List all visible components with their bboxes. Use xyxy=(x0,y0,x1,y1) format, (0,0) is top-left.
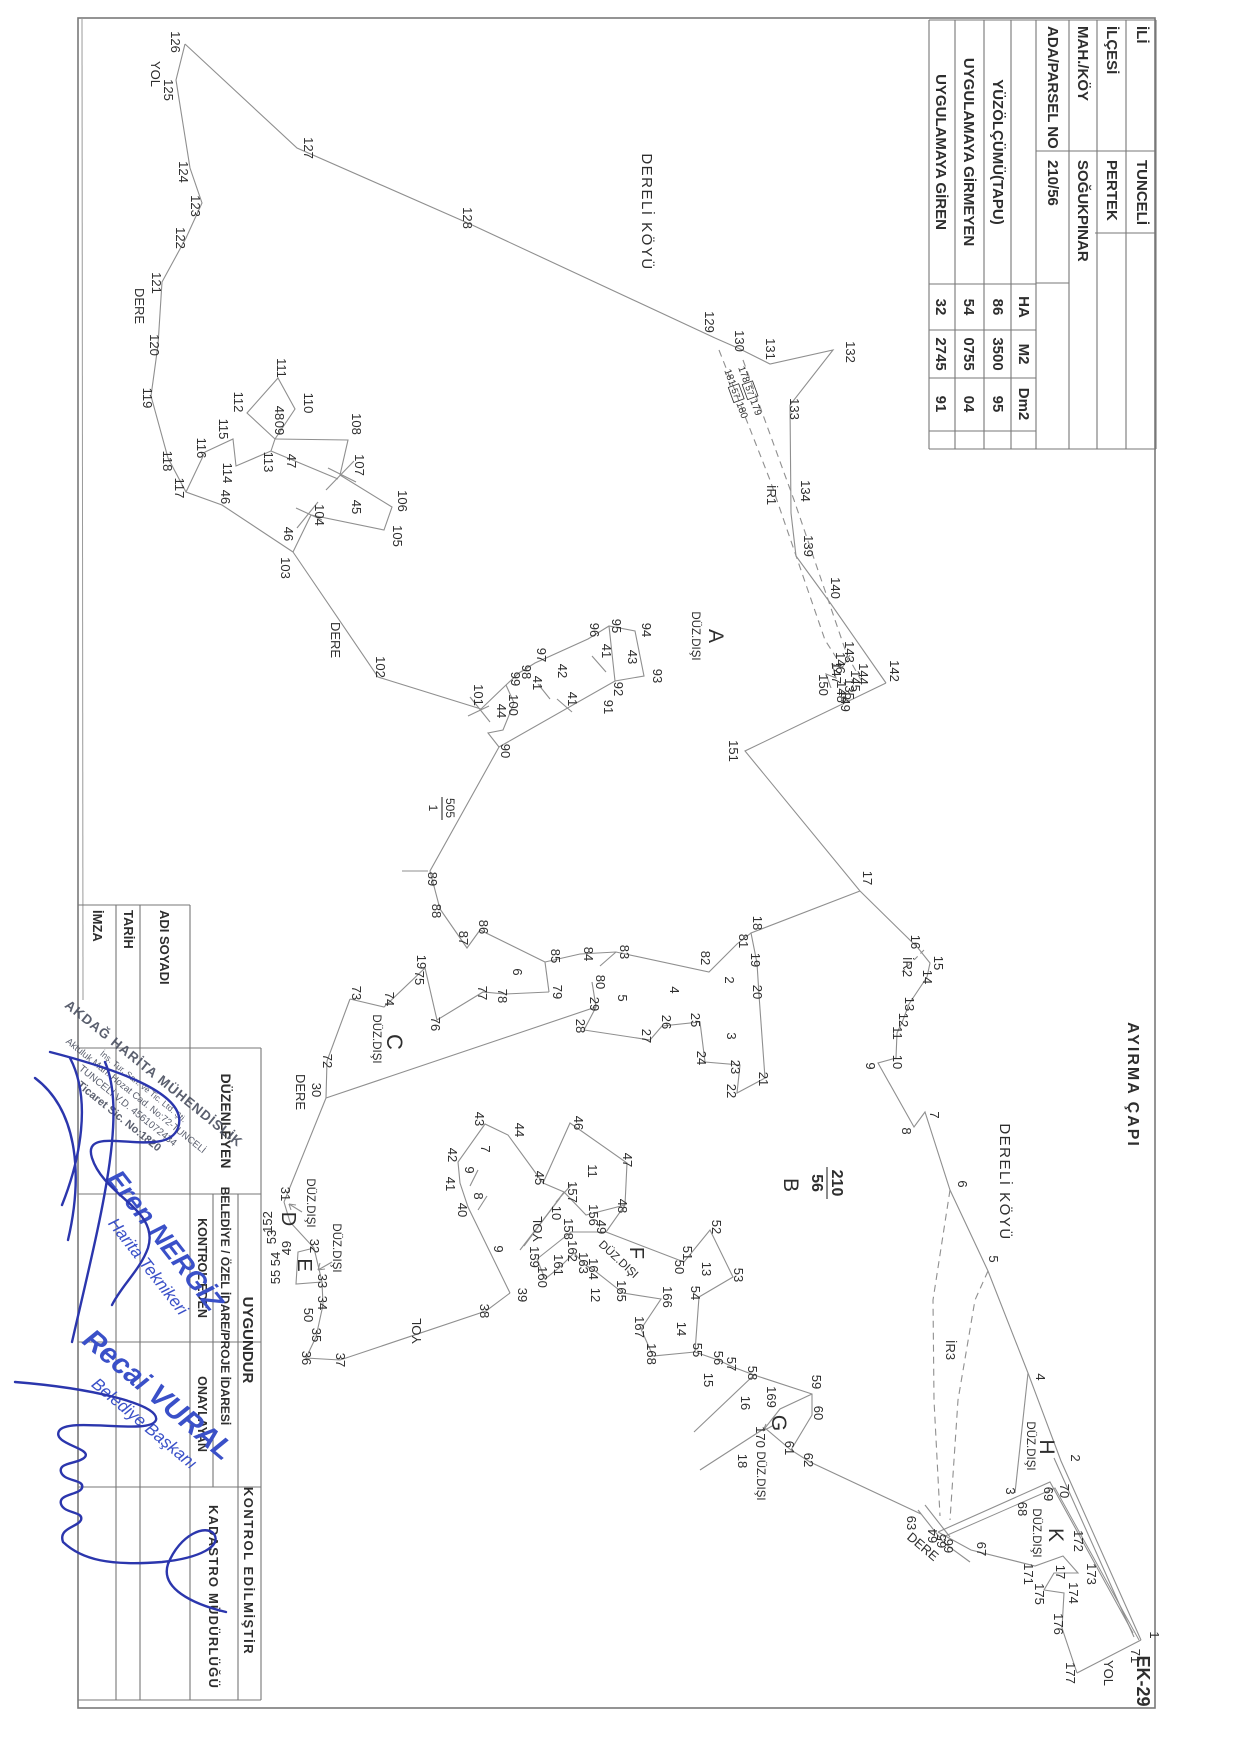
svg-text:11: 11 xyxy=(890,1026,905,1040)
svg-text:AYIRMA ÇAPI: AYIRMA ÇAPI xyxy=(1124,1022,1141,1148)
svg-text:128: 128 xyxy=(460,207,475,229)
svg-text:11: 11 xyxy=(585,1164,600,1178)
svg-text:121: 121 xyxy=(149,272,164,294)
svg-text:78: 78 xyxy=(495,989,510,1003)
svg-text:5: 5 xyxy=(615,994,630,1001)
svg-text:47: 47 xyxy=(620,1153,635,1167)
svg-text:67: 67 xyxy=(974,1542,989,1556)
svg-text:81: 81 xyxy=(736,934,751,948)
svg-text:54: 54 xyxy=(688,1286,703,1300)
svg-text:F: F xyxy=(625,1247,647,1259)
svg-text:175: 175 xyxy=(1032,1583,1047,1605)
svg-text:104: 104 xyxy=(312,504,327,526)
svg-text:61: 61 xyxy=(782,1441,797,1455)
svg-text:99: 99 xyxy=(508,672,523,686)
svg-text:2745: 2745 xyxy=(932,337,949,370)
svg-text:10: 10 xyxy=(549,1206,564,1220)
svg-text:165: 165 xyxy=(614,1280,629,1302)
svg-text:29: 29 xyxy=(587,997,602,1011)
svg-text:114: 114 xyxy=(220,463,235,484)
svg-text:32: 32 xyxy=(932,299,949,316)
svg-text:36: 36 xyxy=(299,1351,314,1365)
svg-text:113: 113 xyxy=(261,452,276,473)
svg-text:125: 125 xyxy=(161,79,176,101)
svg-text:108: 108 xyxy=(349,413,364,435)
svg-text:72: 72 xyxy=(320,1054,335,1068)
svg-text:100: 100 xyxy=(506,694,521,716)
svg-text:MAH./KÖY: MAH./KÖY xyxy=(1074,26,1091,101)
svg-text:YOL: YOL xyxy=(409,1318,424,1344)
svg-text:42: 42 xyxy=(555,664,570,678)
svg-text:95: 95 xyxy=(989,396,1006,413)
svg-text:UYGULAMAYA GİREN: UYGULAMAYA GİREN xyxy=(932,74,949,230)
svg-text:110: 110 xyxy=(301,393,316,414)
svg-text:97: 97 xyxy=(534,648,549,662)
svg-text:140: 140 xyxy=(828,577,843,599)
svg-text:171: 171 xyxy=(1021,1563,1036,1585)
svg-text:30: 30 xyxy=(309,1083,324,1097)
svg-text:103: 103 xyxy=(278,557,293,579)
svg-text:44: 44 xyxy=(512,1123,527,1137)
svg-text:37: 37 xyxy=(333,1353,348,1367)
svg-text:İR1: İR1 xyxy=(764,485,779,505)
svg-text:56: 56 xyxy=(711,1351,726,1365)
svg-text:123: 123 xyxy=(188,195,203,217)
svg-text:89: 89 xyxy=(425,872,440,886)
svg-text:40: 40 xyxy=(455,1203,470,1217)
svg-text:7: 7 xyxy=(478,1145,493,1152)
svg-text:120: 120 xyxy=(147,334,162,356)
svg-text:0755: 0755 xyxy=(960,337,977,370)
svg-text:M2: M2 xyxy=(1015,344,1032,365)
svg-text:8: 8 xyxy=(899,1127,914,1134)
svg-text:26: 26 xyxy=(659,1015,674,1029)
svg-text:53: 53 xyxy=(731,1268,746,1282)
svg-text:105: 105 xyxy=(390,525,405,547)
svg-text:20: 20 xyxy=(750,985,765,999)
svg-text:41: 41 xyxy=(443,1177,458,1191)
svg-text:150: 150 xyxy=(816,674,831,696)
svg-text:Dm2: Dm2 xyxy=(1015,388,1032,421)
svg-text:68: 68 xyxy=(1015,1502,1030,1516)
svg-text:8: 8 xyxy=(471,1192,486,1199)
svg-text:107: 107 xyxy=(352,454,367,476)
svg-text:169: 169 xyxy=(764,1386,779,1408)
svg-text:E: E xyxy=(293,1258,315,1271)
svg-text:DÜZ.DIŞI: DÜZ.DIŞI xyxy=(596,1239,640,1281)
svg-text:İLİ: İLİ xyxy=(1133,26,1150,44)
svg-text:80: 80 xyxy=(593,975,608,989)
svg-text:48: 48 xyxy=(615,1199,630,1213)
svg-text:57: 57 xyxy=(729,387,742,400)
svg-text:210: 210 xyxy=(828,1170,845,1197)
svg-text:47: 47 xyxy=(284,454,299,468)
svg-text:3: 3 xyxy=(1003,1487,1018,1494)
svg-text:46: 46 xyxy=(571,1116,586,1130)
svg-text:DÜZ.DIŞI: DÜZ.DIŞI xyxy=(689,611,701,660)
svg-text:15: 15 xyxy=(701,1373,716,1387)
svg-text:DERE: DERE xyxy=(293,1074,308,1110)
svg-text:70: 70 xyxy=(1057,1484,1072,1498)
svg-text:38: 38 xyxy=(477,1304,492,1318)
svg-text:93: 93 xyxy=(650,669,665,683)
svg-text:54: 54 xyxy=(268,1252,283,1266)
svg-text:YOL: YOL xyxy=(530,1216,545,1242)
svg-text:127: 127 xyxy=(301,137,316,159)
svg-text:27: 27 xyxy=(639,1029,654,1043)
svg-text:152: 152 xyxy=(260,1211,275,1233)
svg-text:43: 43 xyxy=(472,1112,487,1126)
svg-text:86: 86 xyxy=(476,920,491,934)
svg-text:DERE: DERE xyxy=(132,288,147,324)
svg-text:YOL: YOL xyxy=(148,61,163,87)
svg-text:G: G xyxy=(767,1415,790,1431)
svg-text:32: 32 xyxy=(307,1239,322,1253)
svg-text:2: 2 xyxy=(1068,1454,1083,1461)
svg-text:162: 162 xyxy=(565,1240,580,1262)
svg-text:İR2: İR2 xyxy=(900,957,915,977)
svg-text:DÜZ.DIŞI: DÜZ.DIŞI xyxy=(370,1014,382,1063)
svg-text:B: B xyxy=(779,1178,802,1192)
svg-text:19: 19 xyxy=(414,955,429,969)
svg-text:43: 43 xyxy=(625,650,640,664)
svg-text:A: A xyxy=(704,629,727,643)
svg-text:KONTROL EDİLMİŞTİR: KONTROL EDİLMİŞTİR xyxy=(241,1487,256,1655)
svg-text:TUNCELİ: TUNCELİ xyxy=(1133,160,1150,225)
svg-text:85: 85 xyxy=(548,949,563,963)
svg-text:92: 92 xyxy=(611,682,626,696)
svg-text:119: 119 xyxy=(140,388,155,409)
svg-text:46: 46 xyxy=(281,527,296,541)
svg-text:35: 35 xyxy=(309,1328,324,1342)
svg-text:117: 117 xyxy=(172,478,187,499)
svg-text:77: 77 xyxy=(475,986,490,1000)
svg-text:106: 106 xyxy=(395,490,410,512)
svg-text:2: 2 xyxy=(722,976,737,983)
svg-text:BELEDİYE / ÖZEL İDARE/PROJE İD: BELEDİYE / ÖZEL İDARE/PROJE İDARESİ xyxy=(218,1187,233,1426)
svg-text:57: 57 xyxy=(743,384,756,397)
svg-text:79: 79 xyxy=(550,985,565,999)
svg-text:62: 62 xyxy=(801,1453,816,1467)
svg-text:73: 73 xyxy=(349,986,364,1000)
svg-text:53: 53 xyxy=(264,1230,279,1244)
svg-text:132: 132 xyxy=(843,341,858,363)
svg-text:54: 54 xyxy=(960,299,977,316)
svg-text:ADI SOYADI: ADI SOYADI xyxy=(157,910,172,985)
svg-text:H: H xyxy=(1035,1439,1058,1454)
svg-text:126: 126 xyxy=(168,31,183,53)
svg-text:UYGUNDUR: UYGUNDUR xyxy=(239,1297,256,1384)
svg-text:İLÇESİ: İLÇESİ xyxy=(1103,26,1120,74)
svg-text:50: 50 xyxy=(672,1260,687,1274)
svg-text:57: 57 xyxy=(724,1357,739,1371)
svg-text:45: 45 xyxy=(532,1171,547,1185)
svg-text:41: 41 xyxy=(599,644,614,658)
svg-text:PERTEK: PERTEK xyxy=(1103,160,1120,221)
svg-text:87: 87 xyxy=(456,931,471,945)
svg-text:84: 84 xyxy=(581,947,596,961)
svg-text:130: 130 xyxy=(732,330,747,352)
svg-text:21: 21 xyxy=(756,1072,771,1086)
svg-text:157: 157 xyxy=(565,1181,580,1203)
svg-text:6: 6 xyxy=(955,1180,970,1187)
svg-text:K: K xyxy=(1044,1528,1067,1542)
svg-text:161: 161 xyxy=(551,1254,566,1276)
svg-text:09: 09 xyxy=(272,421,287,435)
svg-text:17: 17 xyxy=(860,871,875,885)
svg-text:DÜZ.DIŞI: DÜZ.DIŞI xyxy=(754,1451,766,1500)
svg-text:172: 172 xyxy=(1071,1530,1086,1552)
svg-text:13: 13 xyxy=(699,1262,714,1276)
svg-text:16: 16 xyxy=(908,935,923,949)
svg-text:82: 82 xyxy=(698,951,713,965)
svg-text:139: 139 xyxy=(801,535,816,557)
svg-text:41: 41 xyxy=(565,692,580,706)
svg-text:49: 49 xyxy=(594,1220,609,1234)
svg-text:9: 9 xyxy=(491,1245,506,1252)
svg-text:69: 69 xyxy=(1041,1487,1056,1501)
svg-text:167: 167 xyxy=(632,1316,647,1338)
svg-text:9: 9 xyxy=(462,1166,477,1173)
svg-text:39: 39 xyxy=(515,1288,530,1302)
svg-text:505: 505 xyxy=(443,798,457,818)
svg-text:D: D xyxy=(277,1212,299,1226)
svg-text:24: 24 xyxy=(694,1051,709,1065)
svg-text:115: 115 xyxy=(216,419,231,440)
svg-text:12: 12 xyxy=(588,1288,603,1302)
svg-text:34: 34 xyxy=(315,1296,330,1310)
svg-text:88: 88 xyxy=(429,904,444,918)
svg-text:50: 50 xyxy=(301,1308,316,1322)
svg-text:1: 1 xyxy=(1147,1631,1162,1638)
svg-text:DÜZ.DIŞI: DÜZ.DIŞI xyxy=(1024,1421,1036,1470)
svg-text:DÜZ.DIŞI: DÜZ.DIŞI xyxy=(330,1223,342,1272)
svg-text:173: 173 xyxy=(1084,1563,1099,1585)
svg-text:DERE: DERE xyxy=(328,622,343,658)
svg-text:15: 15 xyxy=(931,956,946,970)
svg-text:4: 4 xyxy=(667,986,682,993)
svg-text:SOĞUKPINAR: SOĞUKPINAR xyxy=(1074,160,1092,262)
svg-text:129: 129 xyxy=(702,311,717,333)
svg-text:134: 134 xyxy=(798,480,813,502)
svg-text:56: 56 xyxy=(808,1174,825,1192)
svg-text:58: 58 xyxy=(745,1366,760,1380)
svg-text:İR3: İR3 xyxy=(943,1340,958,1360)
svg-text:52: 52 xyxy=(709,1220,724,1234)
svg-text:180: 180 xyxy=(733,401,749,421)
svg-text:12: 12 xyxy=(896,1013,911,1027)
svg-text:31: 31 xyxy=(278,1187,293,1201)
svg-text:1: 1 xyxy=(426,805,440,812)
svg-text:95: 95 xyxy=(609,619,624,633)
svg-text:23: 23 xyxy=(728,1060,743,1074)
svg-text:158: 158 xyxy=(561,1218,576,1240)
svg-text:DERELİ KÖYÜ: DERELİ KÖYÜ xyxy=(996,1123,1014,1240)
svg-text:3500: 3500 xyxy=(989,337,1006,370)
svg-text:14: 14 xyxy=(920,970,935,984)
svg-text:159: 159 xyxy=(527,1246,542,1268)
svg-text:TARİH: TARİH xyxy=(121,910,136,949)
svg-text:DÜZ.DIŞI: DÜZ.DIŞI xyxy=(304,1178,316,1227)
svg-text:66: 66 xyxy=(941,1539,956,1553)
svg-text:DERELİ KÖYÜ: DERELİ KÖYÜ xyxy=(638,153,656,270)
svg-text:131: 131 xyxy=(763,338,778,360)
svg-text:133: 133 xyxy=(787,398,802,420)
svg-text:17: 17 xyxy=(1053,1565,1068,1579)
svg-text:6: 6 xyxy=(510,968,525,975)
svg-text:7: 7 xyxy=(927,1111,942,1118)
svg-text:170: 170 xyxy=(753,1426,768,1448)
svg-text:04: 04 xyxy=(960,396,977,413)
svg-text:112: 112 xyxy=(231,392,246,413)
svg-text:83: 83 xyxy=(617,945,632,959)
svg-text:142: 142 xyxy=(887,660,902,682)
svg-text:33: 33 xyxy=(315,1274,330,1288)
svg-text:122: 122 xyxy=(173,227,188,249)
svg-text:176: 176 xyxy=(1051,1613,1066,1635)
svg-text:19: 19 xyxy=(748,953,763,967)
svg-text:18: 18 xyxy=(750,916,765,930)
svg-text:13: 13 xyxy=(902,997,917,1011)
svg-text:22: 22 xyxy=(724,1084,739,1098)
svg-text:9: 9 xyxy=(863,1062,878,1069)
svg-text:60: 60 xyxy=(811,1406,826,1420)
svg-text:C: C xyxy=(382,1034,407,1050)
svg-text:90: 90 xyxy=(498,744,513,758)
svg-text:28: 28 xyxy=(573,1019,588,1033)
svg-text:16: 16 xyxy=(738,1396,753,1410)
svg-text:45: 45 xyxy=(349,500,364,514)
svg-text:149: 149 xyxy=(838,690,853,712)
svg-text:YÜZÖLÇÜMÜ(TAPU): YÜZÖLÇÜMÜ(TAPU) xyxy=(989,79,1006,225)
svg-text:102: 102 xyxy=(373,656,388,678)
svg-text:HA: HA xyxy=(1015,296,1032,318)
svg-text:91: 91 xyxy=(932,396,949,413)
svg-text:74: 74 xyxy=(382,992,397,1006)
svg-text:55: 55 xyxy=(690,1343,705,1357)
svg-text:124: 124 xyxy=(176,161,191,183)
svg-text:59: 59 xyxy=(809,1375,824,1389)
svg-text:18: 18 xyxy=(735,1454,750,1468)
svg-text:71: 71 xyxy=(1128,1649,1143,1663)
svg-text:51: 51 xyxy=(680,1246,695,1260)
svg-text:YOL: YOL xyxy=(1101,1660,1116,1686)
svg-text:116: 116 xyxy=(194,438,209,459)
svg-text:DÜZ.DIŞI: DÜZ.DIŞI xyxy=(1030,1508,1042,1557)
svg-text:25: 25 xyxy=(688,1013,703,1027)
svg-text:86: 86 xyxy=(989,299,1006,316)
svg-text:160: 160 xyxy=(535,1266,550,1288)
svg-text:48: 48 xyxy=(272,406,287,420)
svg-text:3: 3 xyxy=(724,1032,739,1039)
svg-text:5: 5 xyxy=(986,1255,1001,1262)
svg-text:151: 151 xyxy=(726,740,741,762)
svg-text:ADA/PARSEL NO: ADA/PARSEL NO xyxy=(1044,26,1061,149)
svg-text:210/56: 210/56 xyxy=(1044,160,1061,206)
svg-text:41: 41 xyxy=(530,676,545,690)
svg-text:14: 14 xyxy=(674,1322,689,1336)
svg-text:94: 94 xyxy=(639,623,654,637)
svg-text:76: 76 xyxy=(428,1017,443,1031)
svg-text:168: 168 xyxy=(644,1343,659,1365)
svg-text:177: 177 xyxy=(1063,1662,1078,1684)
svg-text:91: 91 xyxy=(601,700,616,714)
svg-text:42: 42 xyxy=(445,1148,460,1162)
svg-text:75: 75 xyxy=(412,971,427,985)
svg-text:166: 166 xyxy=(660,1286,675,1308)
svg-text:111: 111 xyxy=(274,358,289,378)
svg-text:4: 4 xyxy=(1033,1373,1048,1380)
svg-text:118: 118 xyxy=(160,451,175,472)
svg-text:101: 101 xyxy=(471,684,486,706)
svg-text:10: 10 xyxy=(890,1055,905,1069)
svg-text:İMZA: İMZA xyxy=(90,910,105,942)
svg-text:96: 96 xyxy=(587,623,602,637)
svg-text:63: 63 xyxy=(904,1516,919,1530)
svg-text:46: 46 xyxy=(218,490,233,504)
svg-text:55: 55 xyxy=(268,1270,283,1284)
svg-text:UYGULAMAYA GİRMEYEN: UYGULAMAYA GİRMEYEN xyxy=(960,58,977,246)
svg-text:174: 174 xyxy=(1066,1582,1081,1604)
